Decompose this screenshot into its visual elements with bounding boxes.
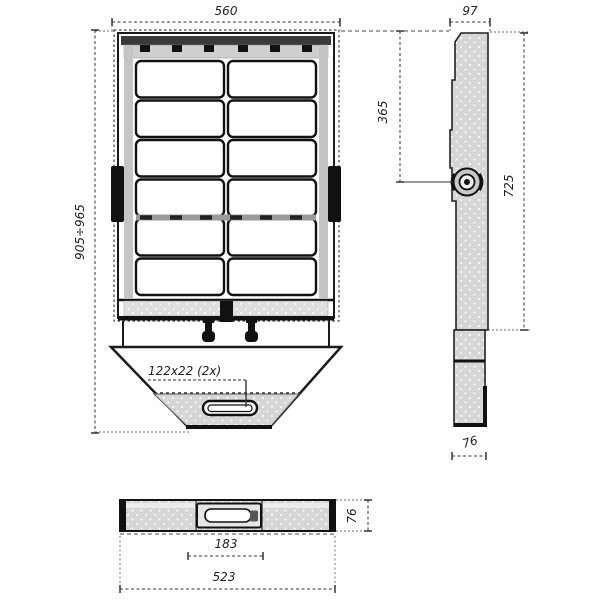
front-center-notch	[220, 301, 233, 322]
bottom-left-cap	[120, 500, 126, 531]
technical-drawing-floodlight: 560 97 905÷965 365 72	[0, 0, 600, 600]
front-left-clamp	[111, 166, 124, 222]
front-view	[111, 30, 341, 427]
side-view	[341, 31, 488, 426]
side-bracket-arm	[454, 330, 485, 426]
dim-profile-height-text: 76	[345, 508, 359, 524]
bottom-right-cap	[329, 500, 335, 531]
drawing-svg: 560 97 905÷965 365 72	[0, 0, 600, 600]
front-right-rail	[319, 45, 328, 298]
dim-overall-width-text: 560	[215, 4, 238, 18]
dim-body-height: 725	[488, 32, 530, 330]
dim-profile-height: 76	[336, 500, 372, 531]
dim-side-depth-text: 97	[462, 4, 478, 18]
cable-gland-left	[202, 318, 215, 342]
dim-connector-width-text: 183	[215, 537, 238, 551]
front-right-clamp	[328, 166, 341, 222]
connector-slot	[205, 509, 251, 522]
dim-arm-width: 76	[452, 433, 486, 460]
dim-pivot-from-top: 365	[376, 31, 404, 182]
cable-gland-right	[245, 318, 258, 342]
connector-plug	[250, 511, 258, 522]
dim-side-depth: 97	[450, 4, 490, 31]
dim-connector-width: 183	[188, 537, 263, 560]
dim-arm-width-text: 76	[461, 433, 480, 451]
pivot-knob	[452, 169, 481, 196]
dim-body-height-text: 725	[502, 175, 516, 198]
bottom-view	[120, 500, 335, 534]
dim-pivot-from-top-text: 365	[376, 101, 390, 124]
dim-overall-width: 560	[112, 4, 340, 30]
front-top-band	[121, 36, 331, 45]
dim-body-width-text: 523	[213, 570, 236, 584]
dim-overall-height-text: 905÷965	[73, 204, 87, 260]
front-left-rail	[124, 45, 133, 298]
front-inner-band	[124, 45, 328, 58]
dim-slot-text: 122x22 (2x)	[148, 364, 221, 378]
